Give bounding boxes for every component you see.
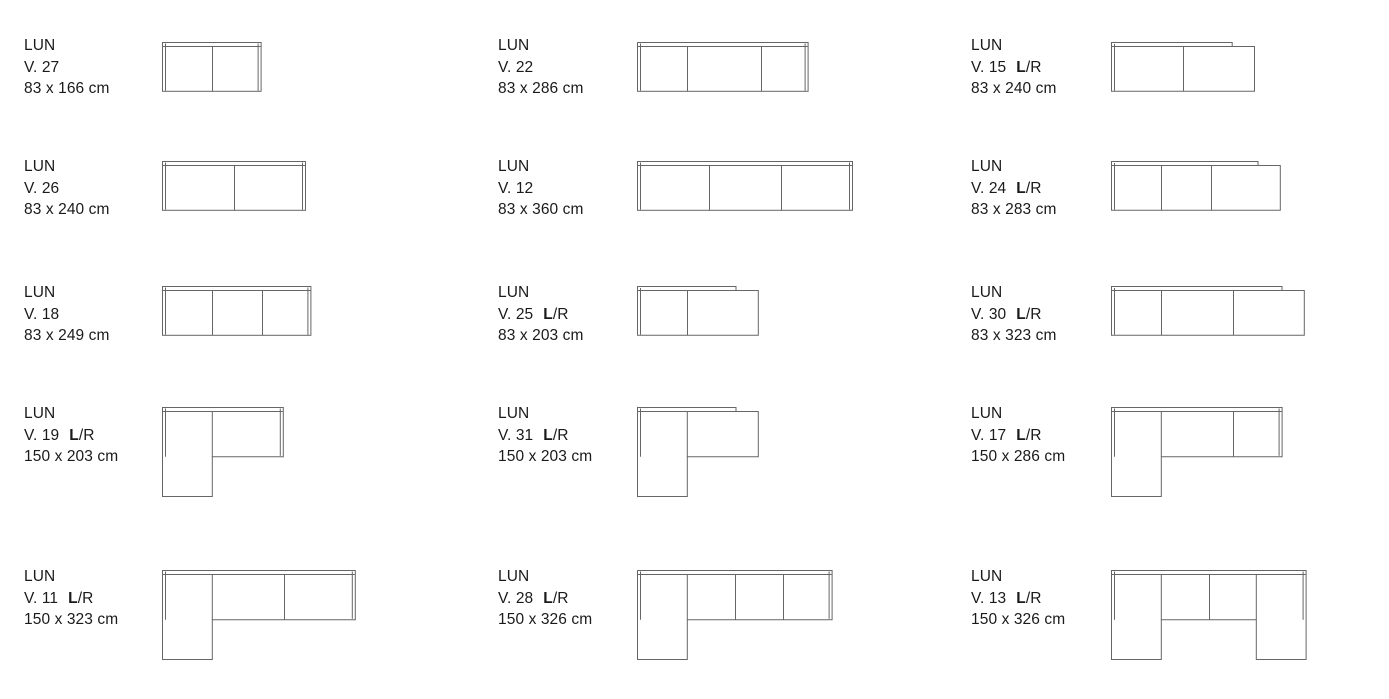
cell-label: LUN V. 19L/R 150 x 203 cm — [24, 403, 118, 468]
variant-number: V. 30 — [971, 306, 1006, 323]
lr-rest: /R — [1026, 180, 1042, 197]
variant-line: V. 12 — [498, 178, 584, 200]
variant-number: V. 27 — [24, 59, 59, 76]
lr-rest: /R — [1026, 59, 1042, 76]
lr-indicator: L/R — [543, 306, 568, 323]
lr-rest: /R — [1026, 427, 1042, 444]
cell-label: LUN V. 22 83 x 286 cm — [498, 35, 584, 100]
lr-rest: /R — [1026, 590, 1042, 607]
sofa-plan-drawing — [1111, 42, 1256, 93]
variant-line: V. 25L/R — [498, 304, 584, 326]
sofa-plan-drawing — [1111, 570, 1308, 661]
variant-line: V. 19L/R — [24, 425, 118, 447]
lr-indicator: L/R — [543, 427, 568, 444]
cell-label: LUN V. 30L/R 83 x 323 cm — [971, 282, 1057, 347]
lr-bold: L — [1016, 306, 1026, 323]
variant-line: V. 30L/R — [971, 304, 1057, 326]
model-name: LUN — [498, 156, 584, 178]
lr-bold: L — [1016, 590, 1026, 607]
lr-bold: L — [543, 306, 553, 323]
lr-indicator: L/R — [69, 427, 94, 444]
variant-number: V. 11 — [24, 590, 58, 607]
sofa-plan-drawing — [1111, 407, 1284, 498]
cell-label: LUN V. 24L/R 83 x 283 cm — [971, 156, 1057, 221]
dimensions: 150 x 203 cm — [498, 446, 592, 468]
variant-number: V. 17 — [971, 427, 1006, 444]
model-name: LUN — [24, 35, 110, 57]
model-name: LUN — [24, 282, 110, 304]
model-name: LUN — [498, 35, 584, 57]
variant-number: V. 15 — [971, 59, 1006, 76]
cell-label: LUN V. 18 83 x 249 cm — [24, 282, 110, 347]
cell-label: LUN V. 11L/R 150 x 323 cm — [24, 566, 118, 631]
lr-bold: L — [1016, 59, 1026, 76]
dimensions: 150 x 326 cm — [971, 609, 1065, 631]
dimensions: 83 x 283 cm — [971, 199, 1057, 221]
lr-bold: L — [1016, 180, 1026, 197]
variant-line: V. 31L/R — [498, 425, 592, 447]
sofa-plan-drawing — [162, 407, 285, 498]
variant-line: V. 17L/R — [971, 425, 1065, 447]
sofa-plan-drawing — [637, 407, 760, 498]
dimensions: 83 x 203 cm — [498, 325, 584, 347]
variant-line: V. 13L/R — [971, 588, 1065, 610]
lr-indicator: L/R — [1016, 59, 1041, 76]
model-name: LUN — [24, 156, 110, 178]
lr-rest: /R — [78, 590, 94, 607]
variant-number: V. 13 — [971, 590, 1006, 607]
cell-label: LUN V. 17L/R 150 x 286 cm — [971, 403, 1065, 468]
sofa-plan-drawing — [162, 42, 263, 93]
variant-number: V. 31 — [498, 427, 533, 444]
cell-label: LUN V. 26 83 x 240 cm — [24, 156, 110, 221]
lr-indicator: L/R — [543, 590, 568, 607]
model-name: LUN — [498, 403, 592, 425]
variant-number: V. 18 — [24, 306, 59, 323]
sofa-plan-drawing — [637, 42, 810, 93]
variant-number: V. 12 — [498, 180, 533, 197]
dimensions: 150 x 203 cm — [24, 446, 118, 468]
lr-bold: L — [68, 590, 78, 607]
cell-label: LUN V. 31L/R 150 x 203 cm — [498, 403, 592, 468]
cell-label: LUN V. 15L/R 83 x 240 cm — [971, 35, 1057, 100]
lr-indicator: L/R — [1016, 306, 1041, 323]
model-name: LUN — [971, 35, 1057, 57]
dimensions: 83 x 240 cm — [971, 78, 1057, 100]
dimensions: 83 x 240 cm — [24, 199, 110, 221]
variant-number: V. 22 — [498, 59, 533, 76]
variant-line: V. 24L/R — [971, 178, 1057, 200]
model-name: LUN — [498, 282, 584, 304]
dimensions: 150 x 323 cm — [24, 609, 118, 631]
variant-number: V. 28 — [498, 590, 533, 607]
dimensions: 83 x 249 cm — [24, 325, 110, 347]
sofa-plan-drawing — [637, 286, 760, 337]
dimensions: 150 x 286 cm — [971, 446, 1065, 468]
lr-indicator: L/R — [1016, 427, 1041, 444]
model-name: LUN — [971, 282, 1057, 304]
lr-bold: L — [543, 590, 553, 607]
model-name: LUN — [971, 566, 1065, 588]
lr-rest: /R — [1026, 306, 1042, 323]
sofa-plan-drawing — [162, 570, 357, 661]
cell-label: LUN V. 25L/R 83 x 203 cm — [498, 282, 584, 347]
sofa-plan-drawing — [162, 286, 313, 337]
cell-label: LUN V. 28L/R 150 x 326 cm — [498, 566, 592, 631]
lr-bold: L — [1016, 427, 1026, 444]
cell-label: LUN V. 12 83 x 360 cm — [498, 156, 584, 221]
variant-line: V. 26 — [24, 178, 110, 200]
dimensions: 83 x 360 cm — [498, 199, 584, 221]
lr-rest: /R — [553, 306, 569, 323]
model-name: LUN — [971, 403, 1065, 425]
sofa-plan-drawing — [1111, 286, 1306, 337]
sofa-plan-drawing — [162, 161, 307, 212]
catalog-sheet: LUN V. 27 83 x 166 cm LUN V. 22 83 x 286… — [0, 0, 1389, 699]
sofa-plan-drawing — [637, 161, 854, 212]
model-name: LUN — [24, 403, 118, 425]
dimensions: 83 x 323 cm — [971, 325, 1057, 347]
variant-number: V. 19 — [24, 427, 59, 444]
variant-line: V. 27 — [24, 57, 110, 79]
dimensions: 83 x 286 cm — [498, 78, 584, 100]
variant-line: V. 11L/R — [24, 588, 118, 610]
dimensions: 150 x 326 cm — [498, 609, 592, 631]
variant-number: V. 25 — [498, 306, 533, 323]
lr-bold: L — [543, 427, 553, 444]
model-name: LUN — [24, 566, 118, 588]
cell-label: LUN V. 27 83 x 166 cm — [24, 35, 110, 100]
cell-label: LUN V. 13L/R 150 x 326 cm — [971, 566, 1065, 631]
variant-line: V. 15L/R — [971, 57, 1057, 79]
sofa-plan-drawing — [637, 570, 834, 661]
lr-rest: /R — [553, 427, 569, 444]
lr-bold: L — [69, 427, 79, 444]
dimensions: 83 x 166 cm — [24, 78, 110, 100]
sofa-plan-drawing — [1111, 161, 1282, 212]
variant-line: V. 18 — [24, 304, 110, 326]
variant-line: V. 28L/R — [498, 588, 592, 610]
lr-rest: /R — [79, 427, 95, 444]
lr-indicator: L/R — [1016, 590, 1041, 607]
model-name: LUN — [971, 156, 1057, 178]
lr-indicator: L/R — [68, 590, 93, 607]
lr-rest: /R — [553, 590, 569, 607]
lr-indicator: L/R — [1016, 180, 1041, 197]
variant-number: V. 24 — [971, 180, 1006, 197]
variant-number: V. 26 — [24, 180, 59, 197]
model-name: LUN — [498, 566, 592, 588]
variant-line: V. 22 — [498, 57, 584, 79]
